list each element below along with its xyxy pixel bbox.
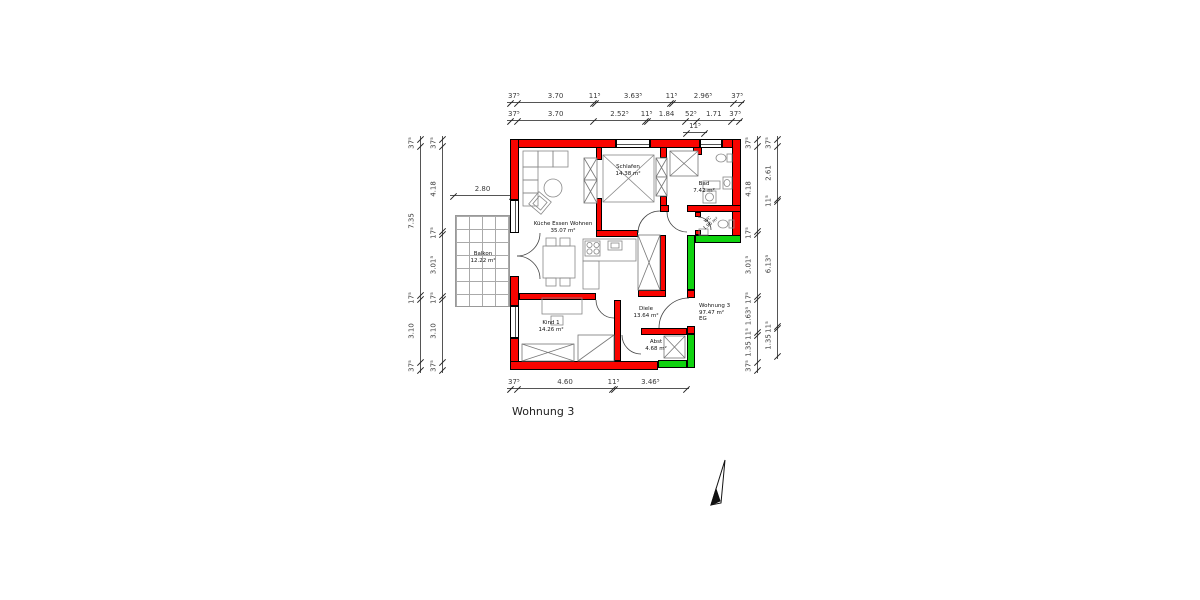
floorplan-canvas: 37⁵3.7011⁵3.63⁵11⁵2.96⁵37⁵ 37⁵3.702.52⁵1… bbox=[0, 0, 1200, 600]
room-label-kueche: Küche Essen Wohnen 35.07 m² bbox=[534, 221, 593, 234]
room-label-diele: Diele 13.64 m² bbox=[633, 306, 658, 319]
wardrobe-hatch bbox=[584, 158, 597, 203]
plan-title: Wohnung 3 bbox=[512, 405, 574, 418]
door-arc-bad bbox=[667, 212, 687, 232]
toilet-wc bbox=[718, 220, 734, 228]
door-arc-schlafen bbox=[638, 211, 660, 233]
wardrobe-kind bbox=[578, 335, 614, 361]
north-arrow-icon bbox=[711, 460, 725, 505]
door-arc-kind bbox=[596, 300, 614, 318]
shaft-hatch bbox=[638, 158, 667, 290]
bed-schlafen bbox=[603, 155, 654, 202]
door-arc-balcony-top bbox=[517, 233, 540, 256]
door-arc-entrance bbox=[659, 298, 689, 328]
sofa bbox=[523, 151, 568, 206]
bed-kind bbox=[522, 344, 574, 361]
toilet-bad bbox=[716, 154, 732, 162]
apartment-label: Wohnung 3 97.47 m² EG bbox=[699, 303, 730, 323]
coffee-table bbox=[544, 179, 562, 197]
door-arc-abst bbox=[622, 335, 641, 354]
dining-table bbox=[543, 238, 575, 286]
room-label-balkon: Balkon 12.22 m² bbox=[470, 251, 495, 264]
door-arc-balcony-bottom bbox=[517, 256, 540, 279]
kitchen-counter bbox=[583, 239, 636, 289]
room-label-bad: Bad 7.42 m² bbox=[693, 181, 715, 194]
plan-linework bbox=[0, 0, 1200, 600]
shower-bad bbox=[670, 151, 698, 176]
room-label-abst: Abst 4.68 m² bbox=[645, 339, 667, 352]
room-label-schlafen: Schlafen 14.38 m² bbox=[615, 164, 640, 177]
room-label-kind: Kind 1 14.26 m² bbox=[538, 320, 563, 333]
sink-bad bbox=[723, 177, 732, 189]
